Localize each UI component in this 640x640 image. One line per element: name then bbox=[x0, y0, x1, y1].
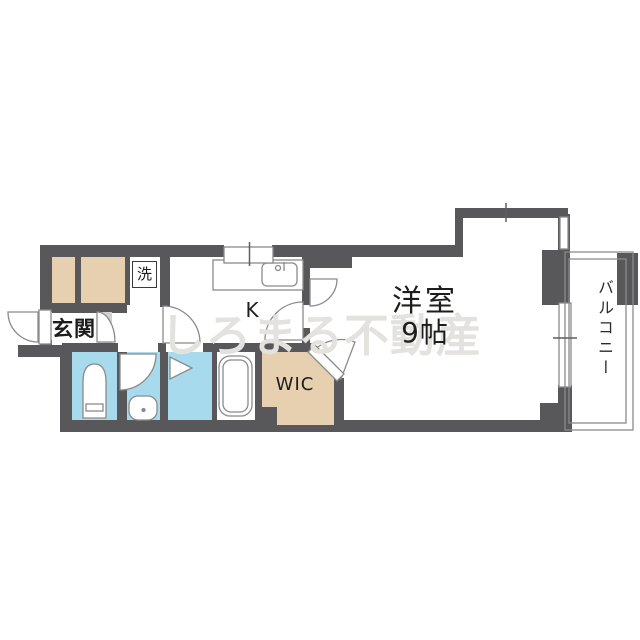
wall-segment bbox=[540, 403, 572, 432]
wall-segment bbox=[272, 245, 463, 257]
label-main-room: 洋室 9帖 bbox=[382, 286, 468, 349]
main-room-size: 9帖 bbox=[382, 318, 468, 348]
wall-segment bbox=[52, 303, 127, 313]
washbasin-drain bbox=[142, 409, 145, 412]
label-kitchen: K bbox=[240, 298, 264, 322]
label-wic: WIC bbox=[270, 374, 320, 395]
entrance-inner-door-swing bbox=[97, 312, 115, 342]
label-entrance: 玄関 bbox=[50, 313, 98, 343]
kitchen-window bbox=[224, 247, 273, 263]
wall-segment bbox=[334, 378, 344, 432]
wall-segment bbox=[455, 214, 463, 257]
protrusion-window bbox=[560, 217, 568, 249]
faucet-icon bbox=[276, 266, 281, 271]
closet-left bbox=[52, 257, 75, 303]
wall-segment bbox=[40, 245, 224, 257]
front-door-swing bbox=[8, 312, 38, 342]
wall-segment bbox=[18, 345, 62, 357]
label-balcony: バルコニー bbox=[592, 279, 616, 419]
wall-segment bbox=[62, 343, 118, 352]
closet-right bbox=[81, 257, 125, 303]
washer-box: 洗 bbox=[132, 261, 157, 288]
wall-segment bbox=[75, 257, 81, 305]
wall-segment bbox=[40, 255, 52, 312]
wall-segment bbox=[260, 405, 277, 432]
toilet-seat bbox=[86, 404, 103, 411]
wall-segment bbox=[455, 208, 568, 218]
main-room-name: 洋室 bbox=[382, 286, 468, 318]
floor-plan: しろまる不動産 玄関 洗 K WIC 洋室 9帖 バルコニー bbox=[0, 0, 640, 640]
wall-segment bbox=[302, 257, 352, 268]
wall-segment bbox=[125, 257, 130, 305]
wall-segment bbox=[617, 253, 638, 305]
wall-segment bbox=[542, 250, 570, 305]
